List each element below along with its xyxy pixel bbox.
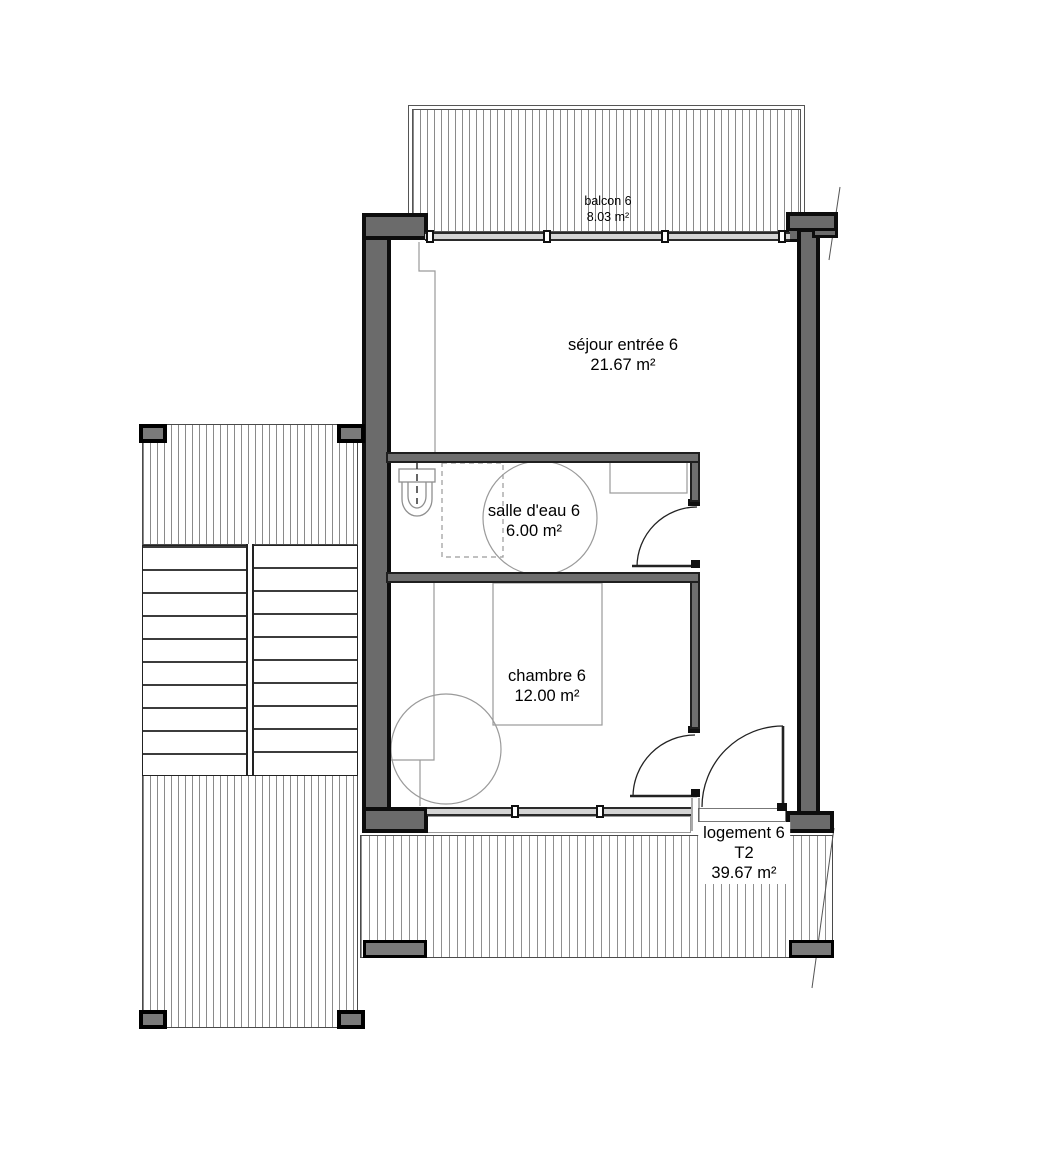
- door-arc-bathroom: [637, 507, 697, 567]
- partition-bathroom-bedroom: [386, 572, 700, 583]
- unit-label: logement 6 T2 39.67 m²: [698, 822, 790, 884]
- window-mullion: [778, 230, 786, 243]
- wall-left: [362, 213, 391, 833]
- post: [337, 1010, 365, 1029]
- room-area: 21.67 m²: [568, 355, 678, 375]
- post: [139, 424, 167, 443]
- bathroom-counter: [610, 462, 687, 493]
- room-label-sejour: séjour entrée 6 21.67 m²: [568, 335, 678, 375]
- boundary-line-bottom: [812, 828, 834, 988]
- door-arc-bedroom: [633, 735, 695, 797]
- window-mullion: [596, 805, 604, 818]
- toilet-icon: [399, 462, 435, 516]
- room-name: balcon 6: [584, 193, 631, 209]
- partition-sejour-bathroom: [386, 452, 700, 463]
- room-area: 12.00 m²: [508, 686, 586, 706]
- room-label-salle-eau: salle d'eau 6 6.00 m²: [488, 501, 580, 541]
- window-mullion: [543, 230, 551, 243]
- closet-line-entry: [419, 242, 435, 452]
- window-mullion: [661, 230, 669, 243]
- deck-footing-left: [363, 940, 427, 958]
- room-area: 8.03 m²: [584, 209, 631, 225]
- wall-footing-bottom-right: [786, 811, 834, 833]
- room-area: 6.00 m²: [488, 521, 580, 541]
- window-mullion: [426, 230, 434, 243]
- unit-area: 39.67 m²: [703, 863, 785, 883]
- door-arc-entry: [702, 726, 783, 807]
- closet-line-bedroom: [390, 583, 434, 760]
- turning-circle-bedroom: [391, 694, 501, 804]
- unit-name: logement 6: [703, 823, 785, 843]
- partition-bathroom-stub: [690, 461, 700, 502]
- post: [337, 424, 365, 443]
- door-frame-caps: [688, 499, 787, 811]
- deck-footing-right: [789, 940, 834, 958]
- room-name: salle d'eau 6: [488, 501, 580, 521]
- window-bottom-bedroom: [427, 807, 691, 816]
- room-name: séjour entrée 6: [568, 335, 678, 355]
- partition-bedroom-corridor: [690, 581, 700, 729]
- room-label-balcon: balcon 6 8.03 m²: [584, 193, 631, 225]
- post: [139, 1010, 167, 1029]
- wall-right: [797, 228, 820, 816]
- room-name: chambre 6: [508, 666, 586, 686]
- floor-plan: balcon 6 8.03 m² séjour entrée 6 21.67 m…: [0, 0, 1052, 1150]
- window-mullion: [511, 805, 519, 818]
- wall-stub-top-right-right: [812, 228, 838, 238]
- wall-corner-bottom-left: [362, 807, 428, 833]
- room-label-chambre: chambre 6 12.00 m²: [508, 666, 586, 706]
- wall-cap-top-left: [362, 213, 428, 240]
- unit-type: T2: [703, 843, 785, 863]
- window-top-sejour: [425, 232, 790, 241]
